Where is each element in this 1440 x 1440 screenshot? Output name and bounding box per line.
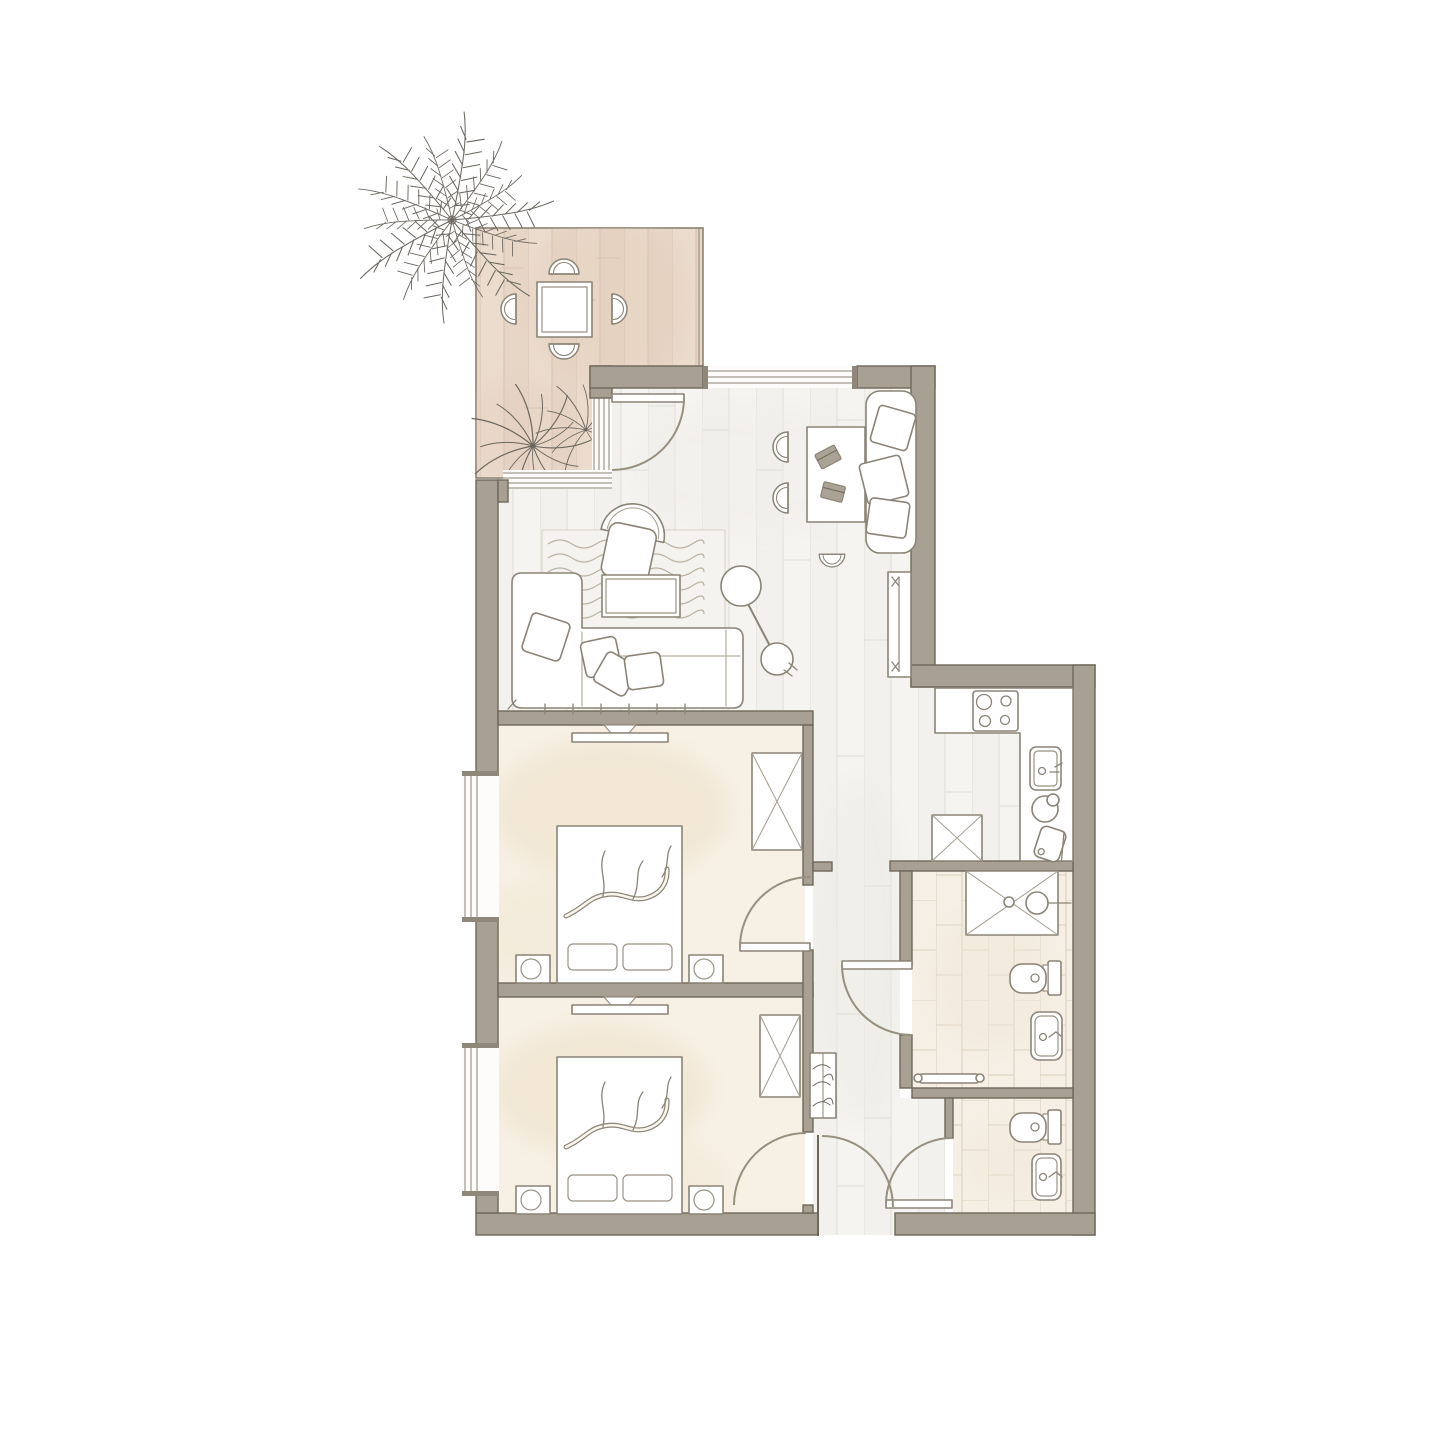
wall-left-middle: [476, 918, 498, 1047]
radiator: [888, 572, 911, 677]
wall-wc-left: [945, 1098, 953, 1138]
kitchen-sink-icon: [1030, 747, 1062, 790]
lounge-chair: [859, 391, 917, 553]
towel-rail-icon: [914, 1074, 984, 1083]
wall-top-left: [590, 366, 703, 388]
window-bedroom1: [462, 771, 499, 922]
wall-bathroom-left-a: [900, 871, 912, 965]
shower-icon: [966, 871, 1071, 935]
wall-left-stub: [498, 480, 508, 502]
tall-cabinet-icon: [932, 815, 982, 861]
window-bedroom2: [462, 1043, 499, 1196]
wall-bathroom-top: [890, 861, 1073, 871]
wall-hallway-a: [803, 725, 813, 885]
washbasin-icon: [1031, 1012, 1062, 1060]
floor-plan-page: [0, 0, 1440, 1440]
wall-hall-stub: [813, 862, 832, 871]
wall-bottom-right: [895, 1213, 1095, 1235]
toilet-icon: [1010, 1110, 1061, 1144]
toilet-icon: [1010, 961, 1061, 995]
desk: [807, 427, 865, 522]
wall-bottom-left: [476, 1213, 818, 1235]
wall-bathroom-wc: [912, 1088, 1073, 1098]
wall-right-lower: [1073, 665, 1095, 1235]
washbasin-icon: [1032, 1154, 1062, 1200]
wall-hallway-c: [803, 1205, 813, 1213]
wall-bedroom1-bedroom2: [498, 983, 813, 997]
wall-left-upper: [476, 480, 498, 775]
floor-plan-drawing: [0, 0, 1440, 1440]
coat-rack-icon: [810, 1053, 836, 1118]
wall-bathroom-left-b: [900, 1035, 912, 1088]
cooktop-icon: [973, 691, 1018, 731]
palm-tree-icon: [349, 112, 555, 324]
window-living-top: [703, 366, 857, 389]
wardrobe-icon: [760, 1015, 800, 1097]
hallway: [810, 1053, 836, 1118]
wardrobe-icon: [752, 753, 802, 850]
wall-kitchen-top: [911, 665, 1095, 687]
